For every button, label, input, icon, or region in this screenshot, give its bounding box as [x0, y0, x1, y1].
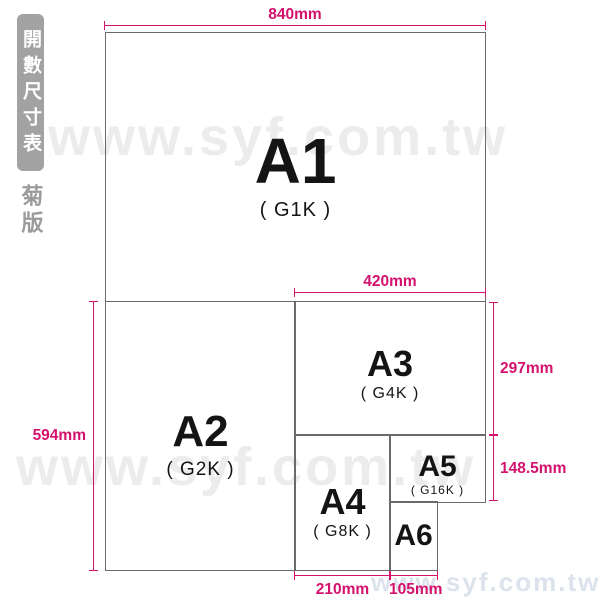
dimension-label-148.5mm: 148.5mm [500, 461, 566, 477]
paper-label-group: A6 [394, 521, 432, 551]
dimension-line-105mm [389, 571, 438, 580]
dimension-label-840mm: 840mm [104, 7, 486, 23]
paper-label-group: A1 ( G1K ) [255, 129, 337, 220]
paper-box-a6: A6 [389, 501, 438, 571]
paper-size-diagram: www.syf.com.tw www.syf.com.tw www.syf.co… [0, 0, 600, 600]
dimension-line-148mm [489, 435, 498, 501]
paper-k-label: ( G4K ) [361, 386, 420, 402]
dimension-line-297mm [489, 302, 498, 435]
dimension-line-210mm [294, 571, 391, 580]
paper-label-group: A5 ( G16K ) [411, 452, 464, 496]
paper-size-label: A3 [367, 346, 413, 382]
edition-label: 菊版 [17, 181, 44, 241]
paper-label-group: A2 ( G2K ) [166, 410, 234, 479]
dimension-label-420mm: 420mm [294, 274, 486, 290]
paper-k-label: ( G16K ) [411, 484, 464, 496]
chart-title-vertical: 開數尺寸表 [17, 14, 44, 171]
paper-label-group: A3 ( G4K ) [361, 346, 420, 402]
paper-box-a1: A1 ( G1K ) [105, 32, 486, 302]
paper-k-label: ( G1K ) [260, 200, 331, 220]
dimension-label-105mm: 105mm [389, 582, 438, 598]
dimension-label-210mm: 210mm [294, 582, 391, 598]
dimension-label-594mm: 594mm [24, 428, 86, 444]
paper-box-a3: A3 ( G4K ) [294, 301, 486, 436]
paper-box-a5: A5 ( G16K ) [389, 434, 486, 503]
dimension-line-594mm [89, 301, 98, 571]
paper-k-label: ( G8K ) [313, 524, 372, 540]
dimension-label-297mm: 297mm [500, 361, 553, 377]
paper-k-label: ( G2K ) [166, 460, 234, 479]
paper-size-label: A2 [172, 410, 228, 454]
paper-box-a4: A4 ( G8K ) [294, 434, 391, 571]
paper-size-label: A4 [319, 484, 365, 520]
paper-size-label: A1 [255, 129, 337, 193]
paper-label-group: A4 ( G8K ) [313, 484, 372, 540]
paper-box-a2: A2 ( G2K ) [105, 301, 296, 571]
paper-size-label: A5 [418, 452, 456, 482]
paper-size-label: A6 [394, 521, 432, 551]
